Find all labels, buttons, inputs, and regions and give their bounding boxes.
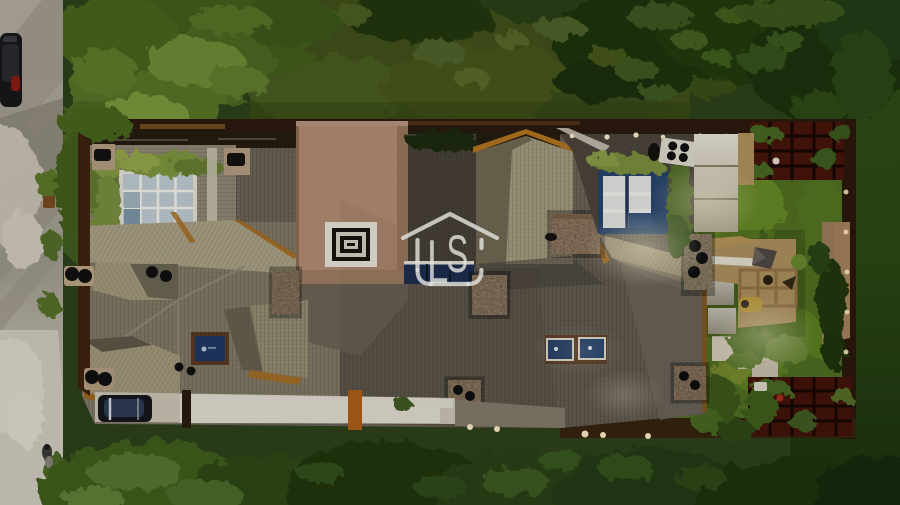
svg-text:L: L: [427, 227, 448, 297]
svg-text:S: S: [446, 225, 468, 284]
